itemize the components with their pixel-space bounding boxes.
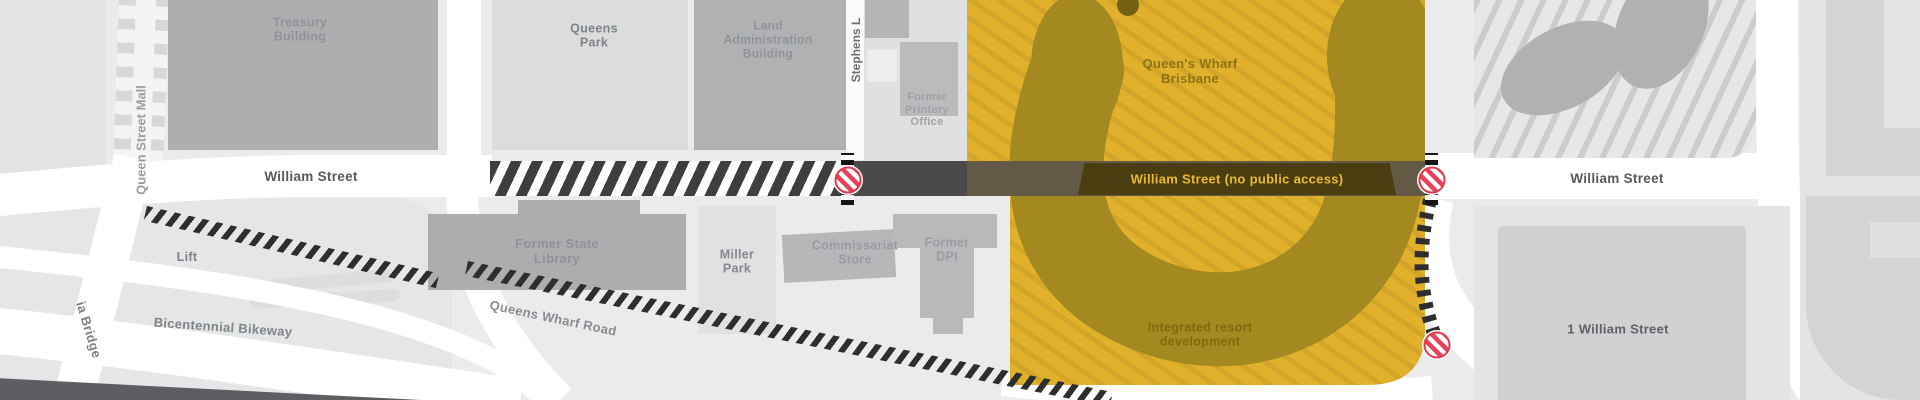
- no-entry-icon-william-east: [1419, 167, 1446, 194]
- precinct-map: Queen Street Mall Treasury Building Quee…: [0, 0, 1920, 400]
- far-right-building-bar-2: [1870, 222, 1920, 258]
- one-william-street-building: [1498, 226, 1746, 400]
- former-dpi-foot: [933, 316, 963, 334]
- william-street-left-road: [0, 176, 492, 196]
- william-street-closed-hatched: [490, 161, 848, 196]
- commissariat-store-building: [782, 229, 896, 283]
- no-entry-icon-queens-wharf-road: [1424, 332, 1451, 359]
- queens-gardens-block: [1474, 0, 1756, 158]
- no-entry-icon-stephens: [835, 167, 862, 194]
- far-right-building-arm: [1884, 128, 1920, 176]
- william-street-no-access-band: [1078, 163, 1396, 195]
- far-right-building-bar: [1826, 0, 1884, 176]
- former-dpi-stem: [920, 214, 974, 318]
